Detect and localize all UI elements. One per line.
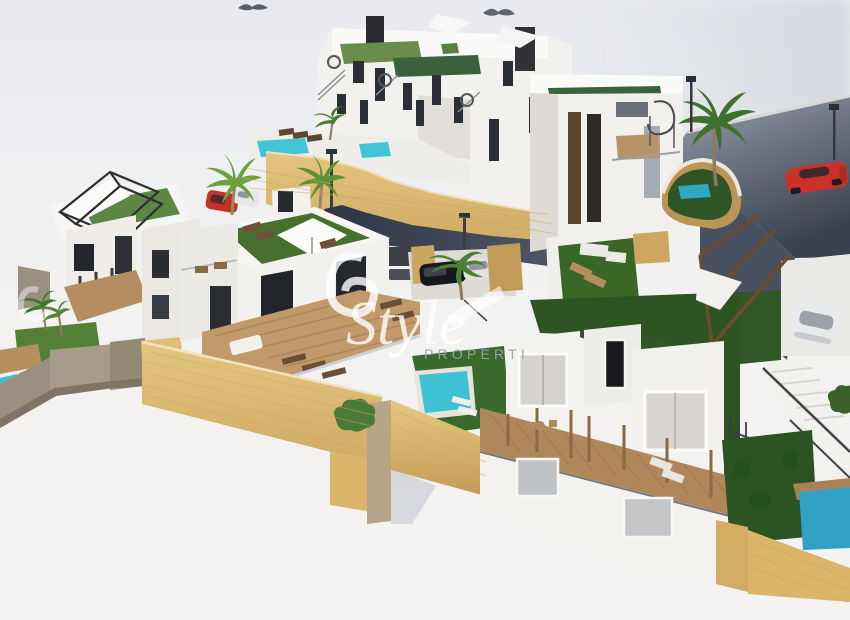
svg-text:PROPERTI: PROPERTI — [424, 346, 529, 362]
